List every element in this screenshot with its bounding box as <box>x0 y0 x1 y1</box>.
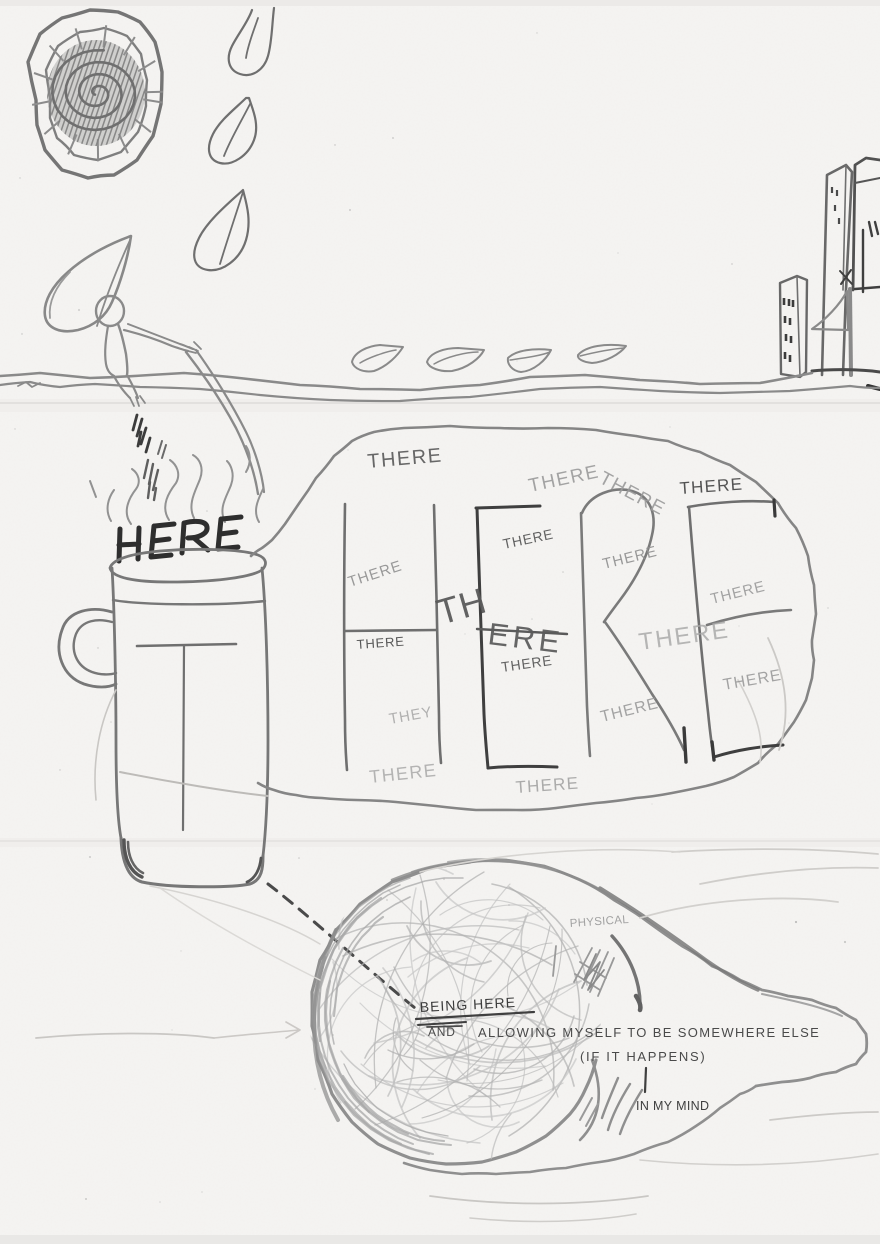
svg-text:(IF IT HAPPENS): (IF IT HAPPENS) <box>580 1049 706 1064</box>
svg-text:IN MY MIND: IN MY MIND <box>636 1099 709 1113</box>
svg-text:ALLOWING MYSELF TO BE SOMEWHE: ALLOWING MYSELF TO BE SOMEWHERE ELSE <box>478 1025 820 1040</box>
